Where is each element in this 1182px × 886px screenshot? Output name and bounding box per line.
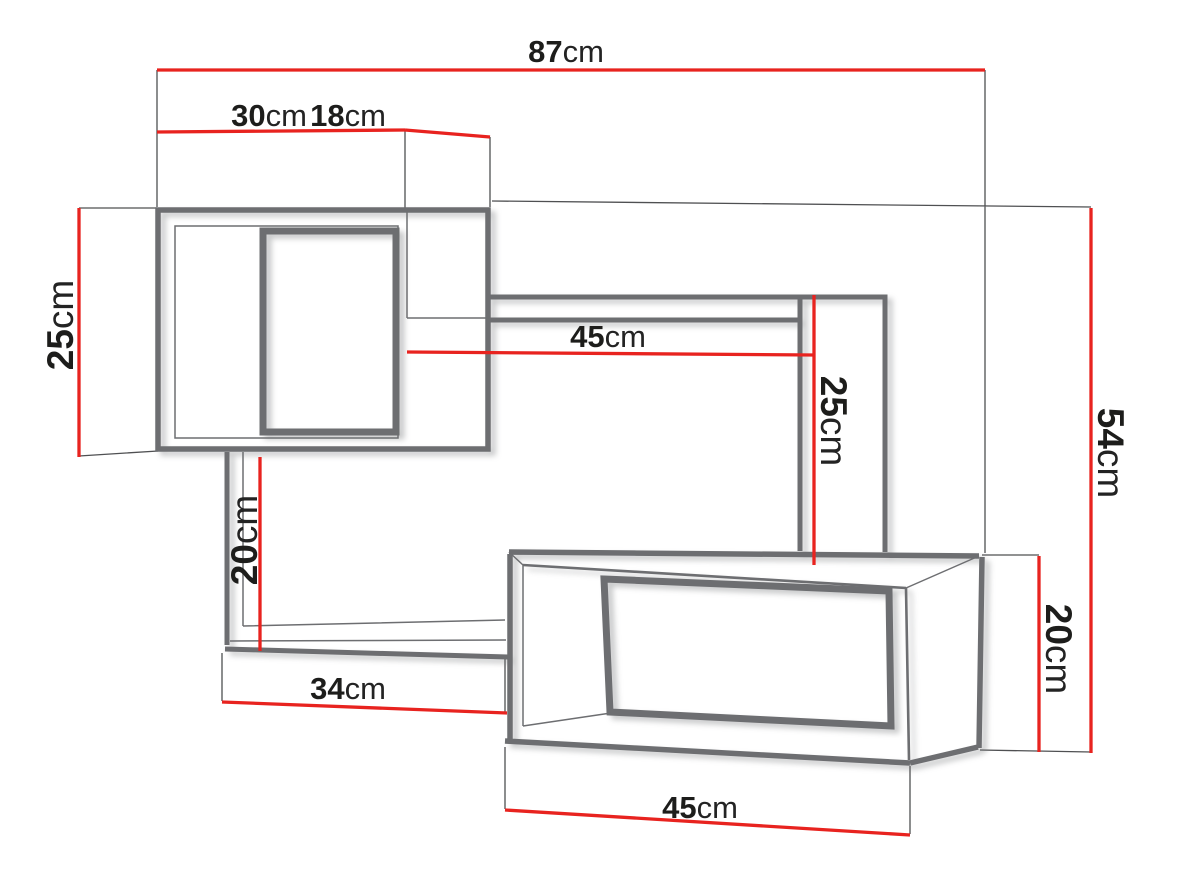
dim-unit: cm xyxy=(266,98,307,133)
dim-label-lower-shelf-width: 34cm xyxy=(310,671,386,706)
connector-and-lower-shelf xyxy=(225,452,508,657)
bottom-cube-front-frame xyxy=(523,565,909,760)
dim-unit: cm xyxy=(345,671,386,706)
dim-label-depth: 18cm xyxy=(310,98,386,133)
shelf-unit-outline xyxy=(158,210,982,763)
dim-unit: cm xyxy=(697,790,738,825)
dim-label-bottom-box-height: 20cm xyxy=(1038,604,1079,694)
shelf-dimension-diagram: 87cm 30cm 18cm 25cm 45cm 25cm 20cm 34cm … xyxy=(0,0,1182,886)
dim-value: 30 xyxy=(231,98,265,133)
dim-value: 20 xyxy=(224,544,265,585)
dimension-labels: 87cm 30cm 18cm 25cm 45cm 25cm 20cm 34cm … xyxy=(40,34,1131,825)
dim-value: 45 xyxy=(662,790,696,825)
dim-value: 25 xyxy=(40,329,81,370)
dim-label-left-connector-height: 20cm xyxy=(224,495,265,585)
top-left-cube-opening xyxy=(263,231,396,432)
dim-unit: cm xyxy=(563,34,604,69)
extension-lines xyxy=(79,70,1091,834)
dim-value: 25 xyxy=(813,376,854,417)
dim-unit: cm xyxy=(345,98,386,133)
dim-label-top-box-height: 25cm xyxy=(40,280,81,370)
dim-label-total-height: 54cm xyxy=(1090,408,1131,498)
dim-unit: cm xyxy=(605,319,646,354)
dim-label-bottom-box-width: 45cm xyxy=(662,790,738,825)
dim-value: 34 xyxy=(310,671,345,706)
dim-value: 54 xyxy=(1090,408,1131,450)
dim-value: 87 xyxy=(528,34,562,69)
bottom-cube-opening xyxy=(604,579,891,726)
extension-lines-path xyxy=(79,70,1091,834)
dim-unit: cm xyxy=(813,417,854,466)
dim-unit: cm xyxy=(224,495,265,544)
dim-label-middle-opening-height: 25cm xyxy=(813,376,854,466)
dim-value: 20 xyxy=(1038,604,1079,645)
dim-label-total-width: 87cm xyxy=(528,34,604,69)
dim-line-depth xyxy=(405,130,490,137)
dimension-lines xyxy=(79,70,1091,835)
dim-label-middle-opening-width: 45cm xyxy=(570,319,646,354)
dim-label-top-box-width: 30cm xyxy=(231,98,307,133)
top-left-cube-outer xyxy=(158,210,488,449)
dim-value: 18 xyxy=(310,98,344,133)
dim-value: 45 xyxy=(570,319,604,354)
dim-unit: cm xyxy=(40,280,81,329)
dim-unit: cm xyxy=(1090,449,1131,498)
dim-unit: cm xyxy=(1038,645,1079,694)
